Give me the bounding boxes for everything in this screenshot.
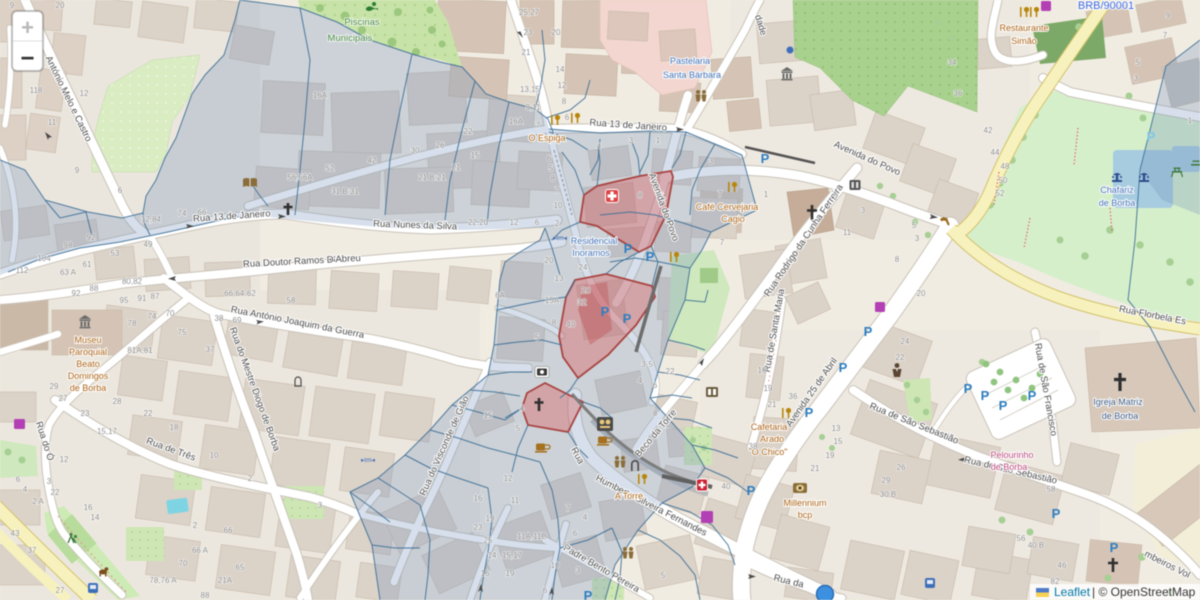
svg-text:12: 12 [510,218,519,227]
svg-text:Museu: Museu [74,335,101,345]
svg-text:3: 3 [861,206,866,215]
svg-text:11: 11 [511,496,520,505]
svg-text:−: − [20,45,34,72]
svg-text:75: 75 [178,328,187,337]
svg-text:22: 22 [51,488,60,497]
svg-text:6: 6 [16,475,21,484]
svg-text:27: 27 [59,394,68,403]
svg-text:P: P [601,304,610,319]
svg-text:70: 70 [166,309,175,318]
svg-text:23: 23 [524,28,533,37]
svg-text:P: P [864,324,873,339]
svg-text:70: 70 [179,559,188,568]
svg-text:▸tm◂: ▸tm◂ [361,457,375,464]
svg-text:22: 22 [144,409,153,418]
svg-text:2: 2 [248,474,253,483]
svg-text:Santa Bárbara: Santa Bárbara [663,70,721,80]
svg-text:P: P [623,311,632,326]
svg-text:29: 29 [882,476,891,485]
svg-text:10: 10 [551,561,560,570]
svg-text:50: 50 [999,176,1008,185]
svg-text:6: 6 [535,218,540,227]
svg-text:112: 112 [16,266,29,275]
svg-text:92: 92 [72,289,81,298]
svg-text:20: 20 [56,1,65,10]
svg-text:44: 44 [991,148,1000,157]
svg-text:92: 92 [87,233,96,242]
svg-text:25: 25 [484,536,493,545]
svg-text:7: 7 [1163,31,1168,40]
svg-text:78: 78 [128,319,137,328]
svg-text:16A: 16A [509,117,524,126]
svg-text:24: 24 [579,263,588,272]
svg-text:Chafariz: Chafariz [1100,185,1134,195]
svg-text:8: 8 [653,409,658,418]
svg-text:8: 8 [895,255,900,264]
svg-text:12: 12 [60,455,69,464]
svg-text:3: 3 [915,234,920,243]
svg-text:19: 19 [506,569,515,578]
svg-text:Paroquial: Paroquial [69,347,107,357]
svg-text:16: 16 [474,494,483,503]
svg-text:12: 12 [558,81,567,90]
svg-text:| © OpenStreetMap: | © OpenStreetMap [1092,585,1196,599]
svg-text:3: 3 [47,477,52,486]
svg-text:3: 3 [318,501,323,510]
svg-text:P: P [761,151,770,166]
svg-text:P: P [839,360,848,375]
svg-text:23: 23 [81,409,90,418]
svg-text:1: 1 [764,190,769,199]
svg-text:6: 6 [543,586,548,595]
svg-text:31 B:31: 31 B:31 [331,187,359,196]
svg-text:Piscinas: Piscinas [344,17,380,28]
svg-text:de Borba: de Borba [991,462,1028,472]
svg-text:66 A: 66 A [192,546,209,555]
svg-text:2: 2 [555,219,560,228]
svg-text:42: 42 [984,126,993,135]
svg-text:48: 48 [1001,162,1010,171]
svg-text:6: 6 [547,154,552,163]
svg-text:P: P [1110,540,1119,555]
svg-text:de Borba: de Borba [70,383,107,393]
svg-text:10: 10 [554,201,563,210]
svg-text:43: 43 [11,529,20,538]
svg-text:de Borba: de Borba [1102,411,1139,421]
svg-text:118: 118 [30,86,43,95]
svg-text:15A: 15A [545,296,560,305]
svg-text:104: 104 [37,254,51,263]
svg-text:15: 15 [471,151,480,160]
svg-text:69: 69 [233,316,242,325]
svg-text:21: 21 [811,464,820,473]
svg-text:P: P [1147,129,1156,144]
svg-text:65: 65 [236,563,245,572]
svg-text:A Torre: A Torre [615,491,643,501]
svg-text:14: 14 [91,513,100,522]
svg-text:7: 7 [555,186,560,195]
svg-text:80,82: 80,82 [122,277,143,286]
svg-text:49: 49 [144,240,153,249]
svg-text:3: 3 [709,157,714,166]
svg-text:11A,11B: 11A,11B [517,532,547,541]
svg-text:6: 6 [573,529,578,538]
svg-text:36: 36 [954,89,963,98]
svg-text:18: 18 [170,423,179,432]
svg-text:8: 8 [552,318,557,327]
svg-text:4: 4 [23,485,28,494]
svg-text:13: 13 [832,424,841,433]
svg-text:98: 98 [64,241,73,250]
svg-text:74: 74 [148,312,157,321]
svg-text:Inoramos: Inoramos [572,248,610,258]
svg-text:52: 52 [326,164,335,173]
svg-text:30 B: 30 B [880,490,896,499]
svg-text:46: 46 [1058,561,1067,570]
svg-text:O Espiga: O Espiga [528,133,565,143]
svg-text:15,17: 15,17 [97,427,118,436]
svg-text:Arado: Arado [760,434,784,444]
svg-text:7: 7 [536,121,541,130]
svg-text:21: 21 [768,400,777,409]
svg-text:Beato: Beato [76,359,100,369]
svg-text:66: 66 [198,208,207,217]
svg-text:20: 20 [545,256,554,265]
svg-text:9: 9 [10,1,15,10]
svg-text:19: 19 [826,451,835,460]
svg-text:15: 15 [834,437,843,446]
svg-text:Domingos: Domingos [68,371,109,381]
svg-text:22: 22 [666,367,675,376]
svg-text:3-5: 3-5 [641,360,653,369]
svg-text:15,17: 15,17 [502,551,523,560]
svg-text:61: 61 [83,260,92,269]
svg-text:66 64-62: 66 64-62 [224,289,256,298]
svg-text:40: 40 [722,482,731,491]
svg-text:5: 5 [549,164,554,173]
svg-text:78,76 A: 78,76 A [149,576,177,585]
svg-text:8: 8 [562,97,567,106]
svg-text:4: 4 [597,142,602,151]
svg-text:22: 22 [464,127,473,136]
svg-text:25,27: 25,27 [519,8,540,17]
svg-text:12: 12 [80,89,89,98]
svg-text:8: 8 [551,174,556,183]
svg-text:21A: 21A [218,576,233,585]
svg-text:22,20: 22,20 [468,218,489,227]
svg-text:88: 88 [90,284,99,293]
svg-text:P: P [584,588,593,600]
svg-text:P: P [964,381,973,396]
svg-text:+: + [21,15,34,40]
svg-text:Pastelaria: Pastelaria [670,56,710,66]
svg-text:24: 24 [901,337,910,346]
svg-text:26: 26 [436,141,445,150]
svg-text:81A,81: 81A,81 [127,346,153,355]
svg-text:4: 4 [638,376,643,385]
svg-text:28: 28 [582,286,591,295]
svg-text:9: 9 [1166,11,1171,20]
svg-text:37: 37 [206,345,215,354]
svg-text:4: 4 [520,404,525,413]
svg-text:8: 8 [565,541,570,550]
svg-text:de Borba: de Borba [1099,198,1136,208]
svg-text:Igreja Matriz: Igreja Matriz [1093,397,1143,407]
svg-text:P: P [646,249,655,264]
svg-text:10: 10 [210,451,219,460]
svg-text:6: 6 [118,186,123,195]
svg-text:Café Cervejaria: Café Cervejaria [696,202,759,212]
svg-text:12: 12 [504,474,513,483]
svg-text:6A: 6A [495,291,505,300]
svg-text:▸tm◂: ▸tm◂ [553,235,567,242]
svg-text:20: 20 [552,28,561,37]
svg-text:16: 16 [481,569,490,578]
svg-text:P: P [1028,388,1037,403]
svg-text:P: P [981,388,990,403]
svg-text:Pelourinho: Pelourinho [990,450,1033,460]
svg-text:28: 28 [113,397,122,406]
svg-text:5: 5 [516,424,521,433]
svg-text:Residencial: Residencial [571,236,618,246]
svg-text:P: P [999,398,1008,413]
svg-text:4: 4 [583,513,588,522]
svg-text:Restaurante: Restaurante [999,23,1048,33]
svg-text:5: 5 [912,221,917,230]
svg-text:P: P [624,241,633,256]
svg-text:13: 13 [555,274,564,283]
svg-text:22: 22 [896,353,905,362]
svg-text:16A: 16A [313,91,328,100]
svg-text:95: 95 [120,296,129,305]
svg-text:Cafetaria: Cafetaria [751,422,788,432]
svg-text:Simão: Simão [1011,36,1037,46]
svg-text:5: 5 [535,333,540,342]
svg-text:Millennium: Millennium [783,498,826,508]
svg-text:21 B:21: 21 B:21 [418,173,446,182]
svg-text:Cagio: Cagio [721,214,745,224]
svg-text:16: 16 [84,503,93,512]
svg-text:38: 38 [749,442,758,451]
svg-text:58: 58 [1047,485,1056,494]
svg-text:11: 11 [843,228,852,237]
svg-text:29: 29 [50,382,59,391]
svg-text:52: 52 [996,189,1005,198]
svg-text:10: 10 [758,366,767,375]
svg-text:42: 42 [368,156,377,165]
svg-text:34: 34 [948,58,957,67]
svg-text:58: 58 [287,296,296,305]
svg-text:9,11: 9,11 [526,103,542,112]
svg-text:6: 6 [565,113,570,122]
svg-text:bcp: bcp [798,510,813,520]
svg-text:Municipais: Municipais [328,33,373,44]
svg-text:2 A: 2 A [32,497,44,506]
svg-text:19: 19 [764,384,773,393]
svg-text:40: 40 [567,320,576,329]
svg-text:36: 36 [789,392,798,401]
svg-text:66: 66 [224,526,233,535]
svg-text:P: P [1052,506,1061,521]
svg-text:3: 3 [1134,74,1139,83]
svg-text:20: 20 [917,289,926,298]
svg-text:7: 7 [566,504,571,513]
svg-text:19: 19 [486,514,495,523]
svg-text:13,15: 13,15 [520,85,541,94]
svg-text:1: 1 [656,136,661,145]
svg-text:56,56A: 56,56A [287,173,313,182]
svg-text:21: 21 [522,48,531,57]
svg-text:40 B: 40 B [1028,541,1044,550]
svg-text:3: 3 [576,566,581,575]
svg-text:23: 23 [474,523,483,532]
svg-text:27: 27 [56,586,65,595]
svg-text:2: 2 [193,521,198,530]
svg-text:32: 32 [578,298,587,307]
svg-text:53: 53 [111,249,120,258]
svg-text:1: 1 [1188,116,1193,125]
svg-text:BRB/90001: BRB/90001 [1078,0,1134,12]
svg-text:74: 74 [178,209,187,218]
svg-text:63 A: 63 A [60,268,77,277]
svg-text:56: 56 [1017,534,1026,543]
svg-text:14: 14 [556,65,565,74]
svg-text:12,84: 12,84 [141,215,162,224]
svg-text:6: 6 [653,381,658,390]
svg-text:87: 87 [151,292,160,301]
svg-text:8: 8 [638,191,643,200]
svg-text:5: 5 [1136,58,1141,67]
svg-text:2: 2 [834,193,839,202]
svg-text:Leaflet: Leaflet [1054,585,1091,599]
svg-text:11: 11 [48,118,57,127]
svg-text:15: 15 [484,411,493,420]
svg-text:91: 91 [138,294,147,303]
svg-text:7: 7 [718,190,723,199]
svg-text:88: 88 [201,591,210,600]
svg-text:14: 14 [488,551,497,560]
svg-text:37: 37 [28,546,37,555]
svg-text:21: 21 [452,163,461,172]
svg-text:5: 5 [661,571,666,580]
svg-text:P: P [747,483,756,498]
svg-text:7: 7 [720,238,725,247]
svg-text:38: 38 [215,314,224,323]
svg-text:9: 9 [75,166,80,175]
svg-text:3: 3 [629,136,634,145]
svg-text:26: 26 [897,463,906,472]
svg-text:30: 30 [411,146,420,155]
